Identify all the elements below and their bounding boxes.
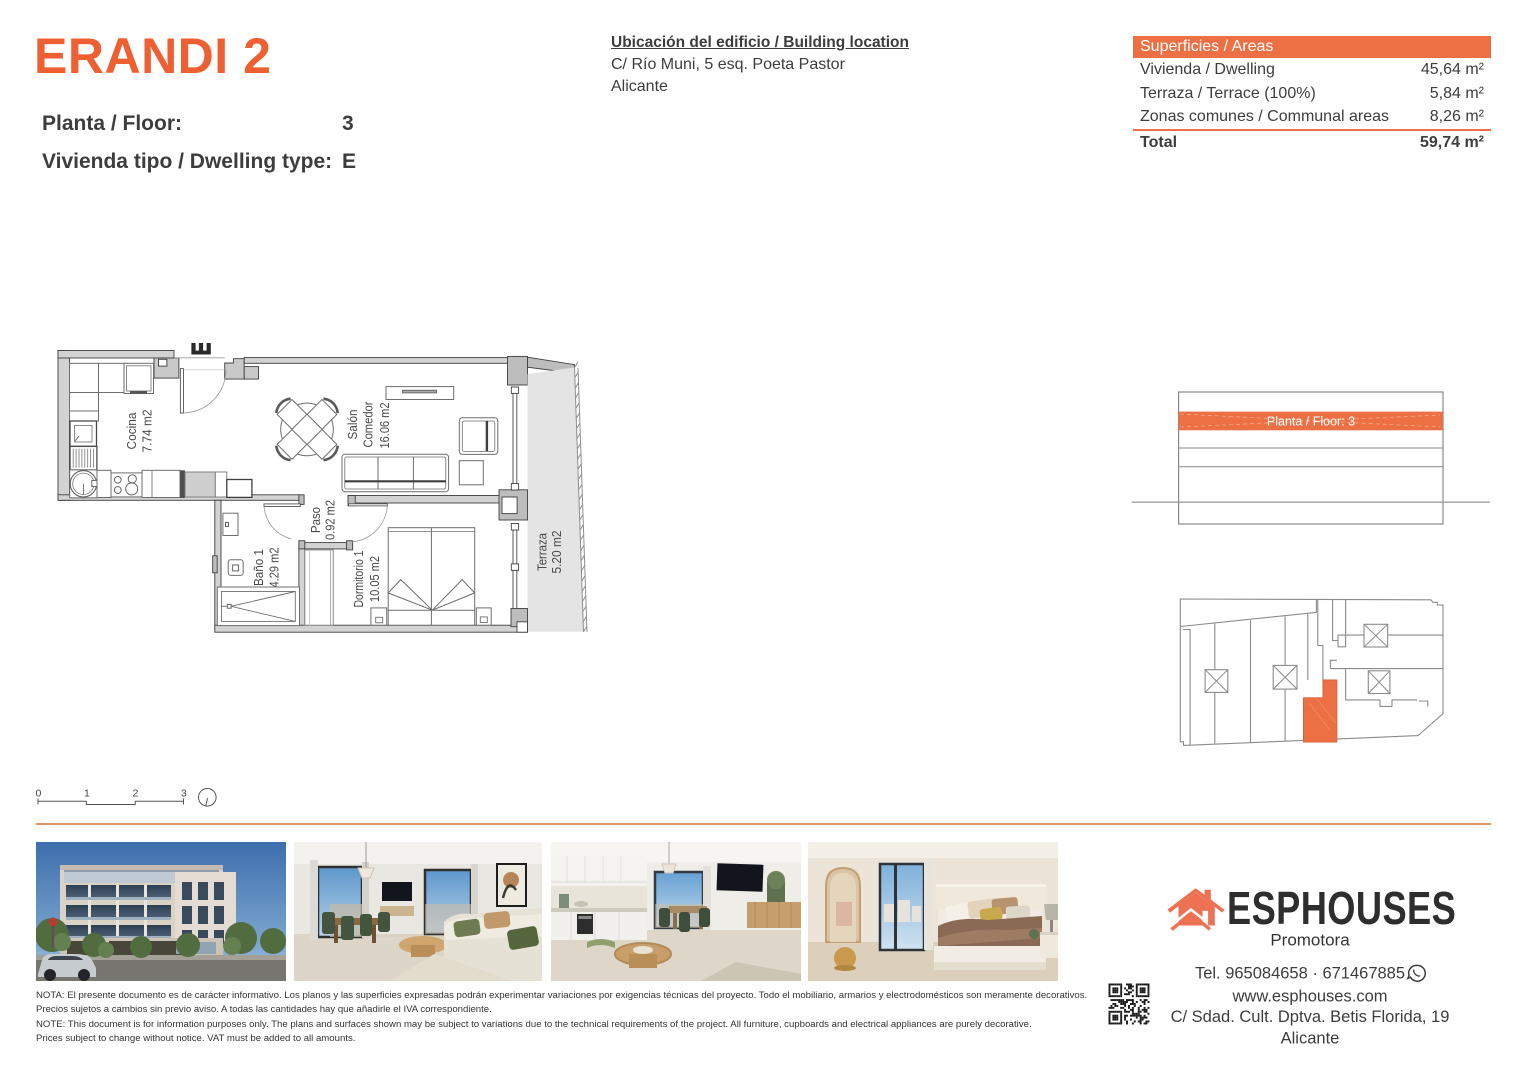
svg-text:Planta / Floor: 3: Planta / Floor: 3	[1267, 415, 1355, 429]
svg-text:Alicante: Alicante	[1281, 1030, 1340, 1048]
svg-text:Paso: Paso	[309, 507, 323, 533]
svg-text:Comedor: Comedor	[362, 402, 376, 448]
svg-text:Promotora: Promotora	[1270, 931, 1350, 950]
svg-text:Salón: Salón	[346, 409, 360, 439]
svg-text:Baño 1: Baño 1	[252, 549, 266, 586]
svg-text:www.esphouses.com: www.esphouses.com	[1232, 988, 1388, 1006]
svg-text:4.29 m2: 4.29 m2	[268, 547, 282, 587]
svg-text:Dormitorio 1: Dormitorio 1	[352, 550, 366, 607]
svg-text:Terraza: Terraza	[536, 533, 550, 571]
svg-text:0: 0	[36, 788, 42, 800]
svg-text:16.06 m2: 16.06 m2	[378, 402, 392, 448]
svg-text:2: 2	[133, 788, 139, 800]
svg-text:0.92 m2: 0.92 m2	[324, 500, 338, 540]
svg-text:C/ Sdad. Cult. Dptva. Betis Fl: C/ Sdad. Cult. Dptva. Betis Florida, 19	[1171, 1008, 1450, 1026]
svg-text:7.74 m2: 7.74 m2	[141, 409, 155, 452]
svg-text:3: 3	[181, 788, 187, 800]
svg-text:10.05 m2: 10.05 m2	[368, 556, 382, 602]
svg-text:Cocina: Cocina	[125, 412, 139, 449]
svg-text:1: 1	[84, 788, 90, 800]
svg-text:Tel. 965084658 · 671467885: Tel. 965084658 · 671467885	[1195, 965, 1405, 983]
svg-text:ESPHOUSES: ESPHOUSES	[1227, 882, 1456, 934]
svg-text:5.20 m2: 5.20 m2	[550, 530, 564, 573]
